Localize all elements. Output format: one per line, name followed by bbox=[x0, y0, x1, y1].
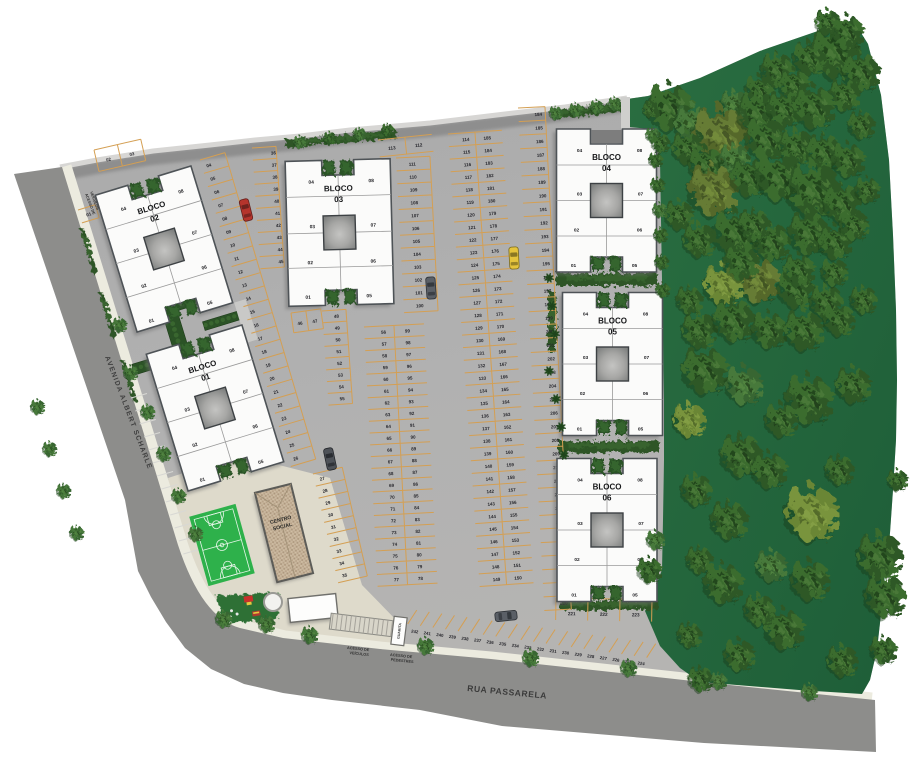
svg-text:86: 86 bbox=[413, 482, 419, 487]
svg-text:58: 58 bbox=[382, 353, 388, 358]
svg-text:102: 102 bbox=[415, 277, 423, 282]
svg-text:66: 66 bbox=[387, 447, 393, 452]
svg-text:158: 158 bbox=[507, 475, 515, 481]
svg-text:174: 174 bbox=[493, 274, 501, 280]
svg-text:72: 72 bbox=[391, 518, 397, 523]
svg-text:153: 153 bbox=[511, 537, 519, 543]
svg-text:177: 177 bbox=[490, 236, 498, 242]
svg-text:02: 02 bbox=[574, 557, 580, 563]
svg-text:04: 04 bbox=[577, 478, 583, 484]
svg-text:104: 104 bbox=[413, 252, 421, 257]
svg-text:222: 222 bbox=[600, 612, 608, 617]
svg-text:190: 190 bbox=[539, 193, 547, 198]
svg-text:49: 49 bbox=[335, 325, 341, 330]
svg-text:44: 44 bbox=[277, 247, 283, 252]
svg-text:202: 202 bbox=[547, 356, 555, 361]
svg-text:197: 197 bbox=[544, 288, 552, 293]
svg-text:128: 128 bbox=[474, 313, 482, 319]
svg-text:69: 69 bbox=[389, 483, 395, 488]
svg-text:05: 05 bbox=[632, 593, 638, 599]
svg-text:188: 188 bbox=[537, 166, 545, 171]
svg-text:101: 101 bbox=[415, 290, 423, 295]
svg-text:150: 150 bbox=[514, 575, 522, 581]
svg-text:142: 142 bbox=[486, 489, 494, 495]
svg-text:84: 84 bbox=[414, 505, 420, 510]
svg-text:55: 55 bbox=[339, 396, 345, 401]
svg-text:184: 184 bbox=[484, 148, 492, 154]
svg-text:121: 121 bbox=[468, 225, 476, 231]
svg-text:118: 118 bbox=[465, 187, 473, 193]
svg-text:154: 154 bbox=[511, 525, 519, 531]
svg-text:117: 117 bbox=[465, 175, 473, 181]
svg-text:01: 01 bbox=[571, 263, 577, 269]
svg-text:01: 01 bbox=[305, 295, 311, 301]
svg-text:194: 194 bbox=[542, 248, 550, 253]
svg-text:85: 85 bbox=[413, 493, 419, 498]
svg-text:77: 77 bbox=[394, 577, 400, 582]
svg-text:07: 07 bbox=[638, 521, 644, 527]
svg-text:06: 06 bbox=[637, 228, 643, 234]
svg-text:88: 88 bbox=[412, 458, 418, 463]
svg-text:03: 03 bbox=[577, 521, 583, 527]
svg-text:83: 83 bbox=[415, 517, 421, 522]
svg-text:108: 108 bbox=[410, 200, 418, 205]
svg-text:169: 169 bbox=[497, 336, 505, 342]
svg-text:02: 02 bbox=[580, 391, 586, 397]
svg-text:130: 130 bbox=[476, 338, 484, 344]
svg-text:166: 166 bbox=[500, 374, 508, 380]
svg-text:82: 82 bbox=[415, 529, 421, 534]
svg-text:73: 73 bbox=[391, 530, 397, 535]
svg-text:114: 114 bbox=[462, 137, 470, 143]
svg-text:136: 136 bbox=[481, 413, 489, 419]
svg-text:63: 63 bbox=[385, 412, 391, 417]
svg-text:40: 40 bbox=[274, 199, 280, 204]
svg-text:132: 132 bbox=[478, 363, 486, 369]
svg-text:99: 99 bbox=[405, 328, 411, 333]
svg-text:62: 62 bbox=[385, 400, 391, 405]
svg-text:75: 75 bbox=[393, 554, 399, 559]
svg-text:39: 39 bbox=[273, 187, 279, 192]
svg-text:145: 145 bbox=[489, 526, 497, 532]
svg-text:03: 03 bbox=[583, 355, 589, 361]
svg-text:05: 05 bbox=[632, 263, 638, 269]
svg-text:167: 167 bbox=[499, 362, 507, 368]
svg-text:01: 01 bbox=[571, 593, 577, 599]
svg-text:78: 78 bbox=[418, 576, 424, 581]
svg-text:04: 04 bbox=[577, 148, 583, 154]
svg-text:183: 183 bbox=[485, 160, 493, 166]
svg-text:126: 126 bbox=[472, 288, 480, 294]
svg-text:53: 53 bbox=[338, 372, 344, 377]
svg-text:185: 185 bbox=[483, 135, 491, 141]
svg-text:36: 36 bbox=[271, 150, 277, 155]
svg-text:159: 159 bbox=[506, 462, 514, 468]
svg-text:131: 131 bbox=[477, 350, 485, 356]
svg-text:170: 170 bbox=[497, 324, 505, 330]
svg-text:161: 161 bbox=[504, 437, 512, 443]
svg-text:04: 04 bbox=[583, 312, 589, 318]
svg-text:111: 111 bbox=[409, 161, 417, 166]
svg-text:147: 147 bbox=[491, 552, 499, 558]
svg-text:93: 93 bbox=[409, 399, 415, 404]
svg-text:199: 199 bbox=[545, 315, 553, 320]
svg-text:223: 223 bbox=[632, 612, 640, 617]
svg-text:129: 129 bbox=[475, 325, 483, 331]
svg-text:01: 01 bbox=[577, 427, 583, 433]
svg-text:08: 08 bbox=[643, 312, 649, 318]
svg-text:96: 96 bbox=[407, 364, 413, 369]
svg-text:105: 105 bbox=[413, 239, 421, 244]
svg-text:164: 164 bbox=[502, 399, 510, 405]
svg-text:162: 162 bbox=[504, 424, 512, 430]
svg-text:64: 64 bbox=[386, 424, 392, 429]
svg-text:201: 201 bbox=[547, 343, 555, 348]
svg-text:122: 122 bbox=[469, 237, 477, 243]
svg-text:140: 140 bbox=[485, 464, 493, 470]
svg-text:06: 06 bbox=[643, 391, 649, 397]
svg-text:07: 07 bbox=[638, 192, 644, 198]
svg-text:133: 133 bbox=[479, 376, 487, 382]
svg-text:160: 160 bbox=[505, 450, 513, 456]
svg-text:180: 180 bbox=[488, 198, 496, 204]
svg-text:179: 179 bbox=[489, 211, 497, 217]
svg-text:68: 68 bbox=[388, 471, 394, 476]
svg-text:120: 120 bbox=[467, 212, 475, 218]
svg-text:95: 95 bbox=[407, 376, 413, 381]
svg-text:175: 175 bbox=[492, 261, 500, 267]
svg-text:07: 07 bbox=[371, 223, 377, 229]
svg-text:193: 193 bbox=[541, 234, 549, 239]
svg-text:185: 185 bbox=[535, 125, 543, 130]
svg-text:182: 182 bbox=[486, 173, 494, 179]
svg-text:156: 156 bbox=[509, 500, 517, 506]
svg-text:191: 191 bbox=[539, 207, 547, 212]
svg-text:192: 192 bbox=[540, 220, 548, 225]
svg-text:189: 189 bbox=[538, 180, 546, 185]
svg-text:144: 144 bbox=[488, 514, 496, 520]
svg-text:71: 71 bbox=[390, 506, 396, 511]
svg-text:146: 146 bbox=[490, 539, 498, 545]
svg-text:43: 43 bbox=[277, 235, 283, 240]
svg-text:54: 54 bbox=[339, 384, 345, 389]
svg-text:138: 138 bbox=[483, 438, 491, 444]
svg-text:81: 81 bbox=[416, 540, 422, 545]
svg-text:04: 04 bbox=[602, 164, 611, 173]
svg-text:41: 41 bbox=[275, 211, 281, 216]
svg-text:08: 08 bbox=[637, 478, 643, 484]
svg-text:109: 109 bbox=[410, 187, 418, 192]
svg-text:03: 03 bbox=[334, 195, 344, 204]
svg-text:176: 176 bbox=[491, 248, 499, 254]
svg-text:187: 187 bbox=[537, 152, 545, 157]
svg-text:74: 74 bbox=[392, 542, 398, 547]
svg-text:181: 181 bbox=[487, 186, 495, 192]
svg-text:BLOCO: BLOCO bbox=[324, 184, 353, 194]
svg-text:100: 100 bbox=[416, 303, 424, 308]
svg-text:98: 98 bbox=[405, 340, 411, 345]
svg-text:BLOCO: BLOCO bbox=[598, 317, 627, 326]
svg-text:08: 08 bbox=[637, 148, 643, 154]
svg-text:61: 61 bbox=[384, 389, 390, 394]
svg-text:124: 124 bbox=[471, 262, 479, 268]
svg-text:42: 42 bbox=[276, 223, 282, 228]
svg-text:115: 115 bbox=[463, 149, 471, 155]
svg-text:52: 52 bbox=[337, 361, 343, 366]
svg-text:157: 157 bbox=[508, 487, 516, 493]
svg-text:97: 97 bbox=[406, 352, 412, 357]
svg-text:221: 221 bbox=[568, 611, 576, 616]
svg-text:135: 135 bbox=[480, 401, 488, 407]
svg-text:67: 67 bbox=[388, 459, 394, 464]
svg-text:139: 139 bbox=[484, 451, 492, 457]
svg-text:141: 141 bbox=[486, 476, 494, 482]
svg-text:90: 90 bbox=[410, 434, 416, 439]
svg-text:112: 112 bbox=[415, 142, 423, 148]
svg-text:91: 91 bbox=[410, 423, 416, 428]
svg-text:163: 163 bbox=[503, 412, 511, 418]
svg-text:59: 59 bbox=[383, 365, 389, 370]
svg-text:165: 165 bbox=[501, 387, 509, 393]
svg-text:106: 106 bbox=[412, 226, 420, 231]
svg-text:152: 152 bbox=[512, 550, 520, 556]
svg-text:149: 149 bbox=[493, 577, 501, 583]
svg-text:184: 184 bbox=[534, 112, 542, 117]
svg-text:87: 87 bbox=[412, 470, 418, 475]
svg-text:127: 127 bbox=[473, 300, 481, 306]
svg-text:89: 89 bbox=[411, 446, 417, 451]
svg-text:04: 04 bbox=[308, 180, 314, 186]
svg-text:151: 151 bbox=[513, 563, 521, 569]
svg-text:171: 171 bbox=[496, 311, 504, 317]
svg-text:03: 03 bbox=[577, 192, 583, 198]
svg-text:03: 03 bbox=[310, 224, 316, 230]
svg-text:208: 208 bbox=[552, 438, 560, 443]
svg-text:45: 45 bbox=[278, 259, 284, 264]
svg-text:148: 148 bbox=[492, 564, 500, 570]
svg-text:38: 38 bbox=[272, 174, 278, 179]
svg-text:BLOCO: BLOCO bbox=[593, 483, 622, 492]
svg-text:70: 70 bbox=[390, 495, 396, 500]
svg-text:110: 110 bbox=[409, 174, 417, 179]
svg-text:206: 206 bbox=[550, 411, 558, 416]
svg-text:05: 05 bbox=[366, 293, 372, 299]
svg-text:08: 08 bbox=[368, 178, 374, 184]
svg-text:02: 02 bbox=[308, 260, 314, 266]
svg-text:56: 56 bbox=[381, 330, 387, 335]
svg-text:94: 94 bbox=[408, 387, 414, 392]
svg-text:134: 134 bbox=[479, 388, 487, 394]
svg-text:113: 113 bbox=[388, 145, 396, 151]
svg-text:119: 119 bbox=[466, 200, 474, 206]
svg-text:103: 103 bbox=[414, 264, 422, 269]
svg-text:37: 37 bbox=[272, 162, 278, 167]
svg-text:57: 57 bbox=[381, 341, 387, 346]
svg-text:195: 195 bbox=[542, 261, 550, 266]
svg-text:05: 05 bbox=[638, 427, 644, 433]
svg-text:123: 123 bbox=[470, 250, 478, 256]
svg-text:168: 168 bbox=[498, 349, 506, 355]
svg-text:173: 173 bbox=[494, 286, 502, 292]
svg-text:48: 48 bbox=[334, 314, 340, 319]
svg-text:76: 76 bbox=[393, 565, 399, 570]
svg-text:79: 79 bbox=[417, 564, 423, 569]
svg-text:06: 06 bbox=[603, 494, 612, 503]
svg-text:BLOCO: BLOCO bbox=[592, 153, 621, 162]
svg-text:186: 186 bbox=[536, 139, 544, 144]
svg-text:07: 07 bbox=[644, 355, 650, 361]
svg-text:51: 51 bbox=[336, 349, 342, 354]
svg-text:125: 125 bbox=[471, 275, 479, 281]
svg-text:155: 155 bbox=[510, 512, 518, 518]
svg-text:50: 50 bbox=[335, 337, 341, 342]
svg-text:143: 143 bbox=[487, 501, 495, 507]
svg-text:05: 05 bbox=[608, 328, 617, 337]
svg-text:204: 204 bbox=[549, 383, 557, 388]
svg-text:178: 178 bbox=[490, 223, 498, 229]
svg-text:06: 06 bbox=[371, 259, 377, 265]
svg-text:172: 172 bbox=[495, 299, 503, 305]
svg-text:137: 137 bbox=[482, 426, 490, 432]
svg-text:92: 92 bbox=[409, 411, 415, 416]
svg-text:107: 107 bbox=[411, 213, 419, 218]
svg-text:02: 02 bbox=[574, 228, 580, 234]
svg-text:80: 80 bbox=[417, 552, 423, 557]
svg-text:65: 65 bbox=[386, 436, 392, 441]
svg-text:60: 60 bbox=[383, 377, 389, 382]
svg-text:116: 116 bbox=[464, 162, 472, 168]
